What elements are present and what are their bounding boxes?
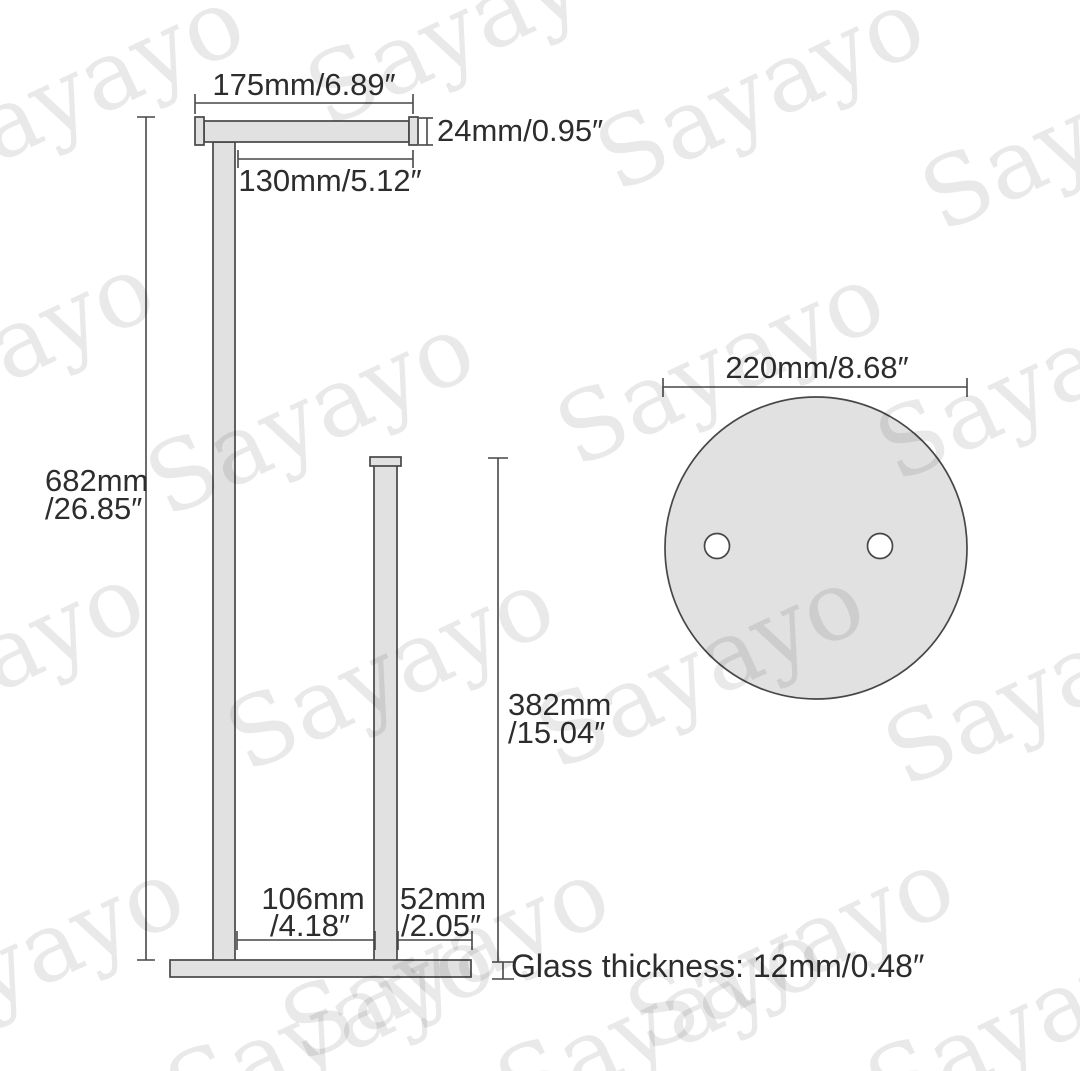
base-screw-hole-right <box>868 534 893 559</box>
main-pole <box>213 142 235 961</box>
diagram-canvas: 175mm/6.89″ 24mm/0.95″ 130mm/5.12″ 682mm… <box>0 0 1080 1071</box>
label-edge-gap-inch: /2.05″ <box>401 908 481 943</box>
label-spare-pole-height-inch: /15.04″ <box>508 715 605 750</box>
spare-pole-cap <box>370 457 401 466</box>
roll-bar-left-cap <box>195 117 204 145</box>
base-screw-hole-left <box>705 534 730 559</box>
base-top-view <box>665 397 967 699</box>
label-glass-thickness: Glass thickness: 12mm/0.48″ <box>511 948 924 984</box>
dim-bar-inner-length: 130mm/5.12″ <box>238 150 422 198</box>
dim-bar-length: 175mm/6.89″ <box>195 67 413 114</box>
label-base-diameter: 220mm/8.68″ <box>725 350 908 385</box>
roll-bar-body <box>204 121 409 142</box>
dim-pole-gap: 106mm /4.18″ <box>237 881 375 950</box>
spare-pole <box>374 465 397 961</box>
label-total-height-inch: /26.85″ <box>45 491 142 526</box>
label-bar-length: 175mm/6.89″ <box>212 67 395 102</box>
dim-glass-thickness: Glass thickness: 12mm/0.48″ <box>492 948 924 984</box>
dim-spare-pole-height: 382mm /15.04″ <box>488 458 611 962</box>
label-pole-gap-inch: /4.18″ <box>270 908 350 943</box>
base-plate-side <box>170 960 471 977</box>
product-dimension-diagram: 175mm/6.89″ 24mm/0.95″ 130mm/5.12″ 682mm… <box>0 0 1080 1071</box>
label-bar-diameter: 24mm/0.95″ <box>437 113 603 148</box>
dim-edge-gap: 52mm /2.05″ <box>398 881 486 950</box>
dim-bar-diameter: 24mm/0.95″ <box>419 113 603 148</box>
roll-bar-right-cap <box>409 117 418 145</box>
side-view <box>170 117 471 977</box>
dim-total-height: 682mm /26.85″ <box>45 117 155 960</box>
label-bar-inner-length: 130mm/5.12″ <box>238 163 421 198</box>
dim-base-diameter: 220mm/8.68″ <box>663 350 967 397</box>
